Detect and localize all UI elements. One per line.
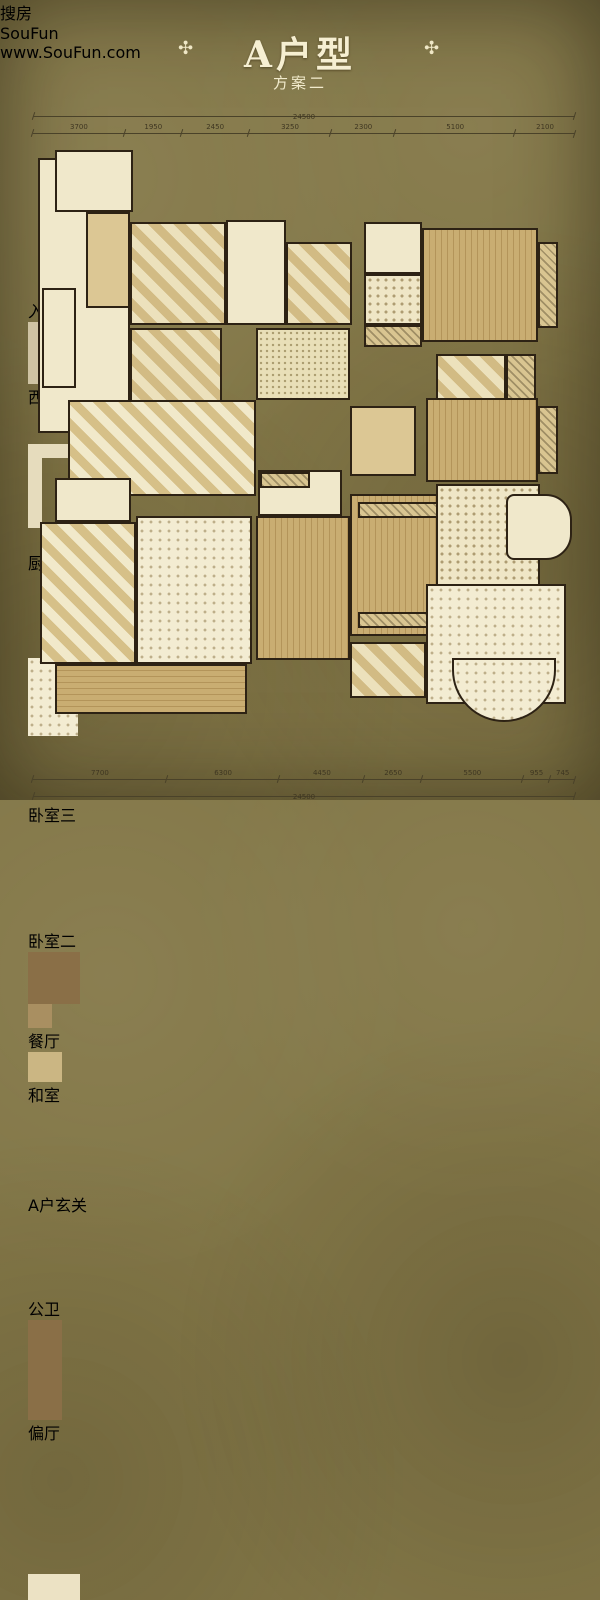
breakfast-nook	[286, 242, 352, 325]
kitchen-counter	[28, 458, 42, 528]
round-medallion	[28, 1216, 80, 1268]
dimension-segment: 5500	[422, 768, 523, 780]
bedroom3-label: 卧室三	[28, 806, 76, 825]
dining-table	[28, 952, 80, 1004]
utility-room	[364, 222, 422, 274]
ornament-left-icon: ✣	[178, 38, 193, 59]
dimension-segment: 745	[550, 768, 575, 780]
entry-garden	[86, 212, 130, 308]
sink-icon	[28, 854, 44, 866]
sofa	[28, 1484, 48, 1560]
dining-table-top	[28, 1004, 52, 1028]
sofa	[28, 1560, 80, 1574]
dimension-row-bottom: 77006300445026505500955745	[33, 768, 575, 780]
dimension-segment: 3700	[33, 122, 125, 134]
maid-room	[364, 274, 422, 325]
dimension-segment: 4450	[279, 768, 364, 780]
public-bathroom-label: 公卫	[28, 1300, 60, 1319]
bed	[28, 866, 108, 928]
dimension-segment: 6300	[167, 768, 280, 780]
page-title: A户型	[0, 26, 600, 78]
balcony	[55, 664, 247, 714]
bench	[28, 1444, 44, 1484]
west-kitchen	[130, 222, 226, 325]
bay-window	[538, 242, 558, 328]
master-round-bay	[452, 658, 556, 722]
bedroom3	[422, 228, 538, 342]
low-table	[28, 1052, 62, 1082]
stove-icon	[28, 528, 38, 550]
kitchen	[226, 220, 286, 325]
side-hall	[40, 522, 136, 664]
dimension-row-top: 3700195024503250230051002100	[33, 122, 575, 134]
dining-label: 餐厅	[28, 1032, 60, 1051]
page-subtitle: 方案二	[0, 72, 600, 93]
tatami-room	[256, 328, 350, 400]
hallway	[350, 406, 416, 476]
dimension-segment: 2100	[515, 122, 575, 134]
dining-room	[130, 328, 222, 406]
coffee-table	[28, 1574, 80, 1600]
soufun-cn-logo: 搜房	[0, 0, 600, 24]
bay-window	[538, 406, 558, 474]
toilet-icon	[28, 838, 40, 854]
wardrobe	[260, 472, 310, 488]
balcony	[350, 642, 426, 698]
dimension-segment: 2650	[364, 768, 422, 780]
dimension-segment: 955	[523, 768, 551, 780]
dimension-segment: 5100	[395, 122, 515, 134]
living-room	[136, 516, 252, 664]
entry-hall-label: A户玄关	[28, 1196, 87, 1215]
dimension-segment: 2450	[182, 122, 249, 134]
ornament-right-icon: ✣	[424, 38, 439, 59]
dimension-segment: 2300	[331, 122, 395, 134]
bed	[28, 736, 102, 802]
dimension-segment: 1950	[125, 122, 182, 134]
tatami-label: 和室	[28, 1086, 60, 1105]
toilet-icon	[28, 1268, 40, 1284]
stairs	[42, 288, 76, 388]
dimension-total-top: 24500	[33, 104, 575, 117]
oval-medallion	[28, 1106, 156, 1192]
stool	[28, 432, 40, 444]
bedroom2	[426, 398, 538, 482]
long-table	[28, 1320, 62, 1420]
floorplan: 入户花园 西厨 厨房 卧室三 卧室二 餐厅 和室 A户玄关	[28, 150, 576, 762]
dimension-segment: 3250	[249, 122, 332, 134]
tub-bay	[506, 494, 572, 560]
floorplan-page: { "page": { "title": "A户型", "subtitle": …	[0, 0, 600, 800]
side-hall-label: 偏厅	[28, 1424, 60, 1443]
desk	[28, 826, 62, 838]
public-bathroom	[55, 478, 131, 522]
top-left-balcony	[55, 150, 133, 212]
drying-balcony	[364, 325, 422, 347]
bedroom2-label: 卧室二	[28, 932, 76, 951]
bedroom1	[256, 516, 350, 660]
dimension-total-bottom: 24500	[33, 784, 575, 797]
sink-icon	[28, 1284, 44, 1296]
